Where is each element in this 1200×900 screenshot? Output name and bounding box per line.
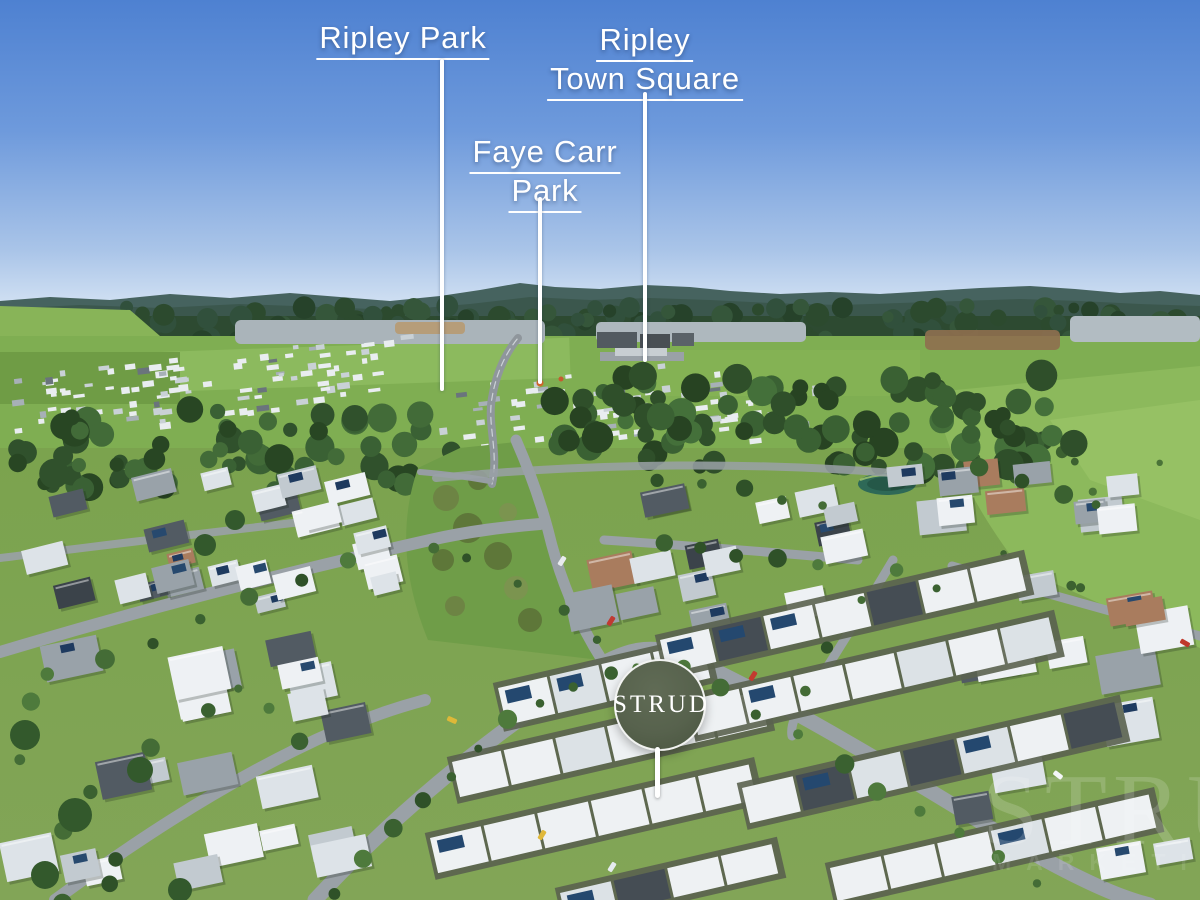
callout-faye-carr-line2: Park (509, 174, 582, 213)
strud-badge-pin (655, 747, 660, 798)
playground-detail (559, 377, 564, 382)
callout-ripley-park-text: Ripley Park (316, 21, 489, 60)
leader-line-town-square (643, 92, 647, 362)
callout-town-square-line1: Ripley (597, 23, 694, 62)
callout-faye-carr-park: Faye Carr Park (469, 135, 620, 213)
callout-faye-carr-line1: Faye Carr (469, 135, 620, 174)
strud-logo-text: STRUD (610, 691, 710, 719)
leader-line-faye-carr (538, 197, 542, 384)
watermark-subtext: MARKETING (992, 849, 1200, 876)
field-strip (0, 352, 180, 404)
strud-logo-badge: STRUD (614, 659, 706, 751)
leader-line-ripley-park (440, 59, 444, 391)
callout-ripley-park: Ripley Park (316, 21, 489, 60)
callout-ripley-town-square: Ripley Town Square (547, 23, 743, 101)
